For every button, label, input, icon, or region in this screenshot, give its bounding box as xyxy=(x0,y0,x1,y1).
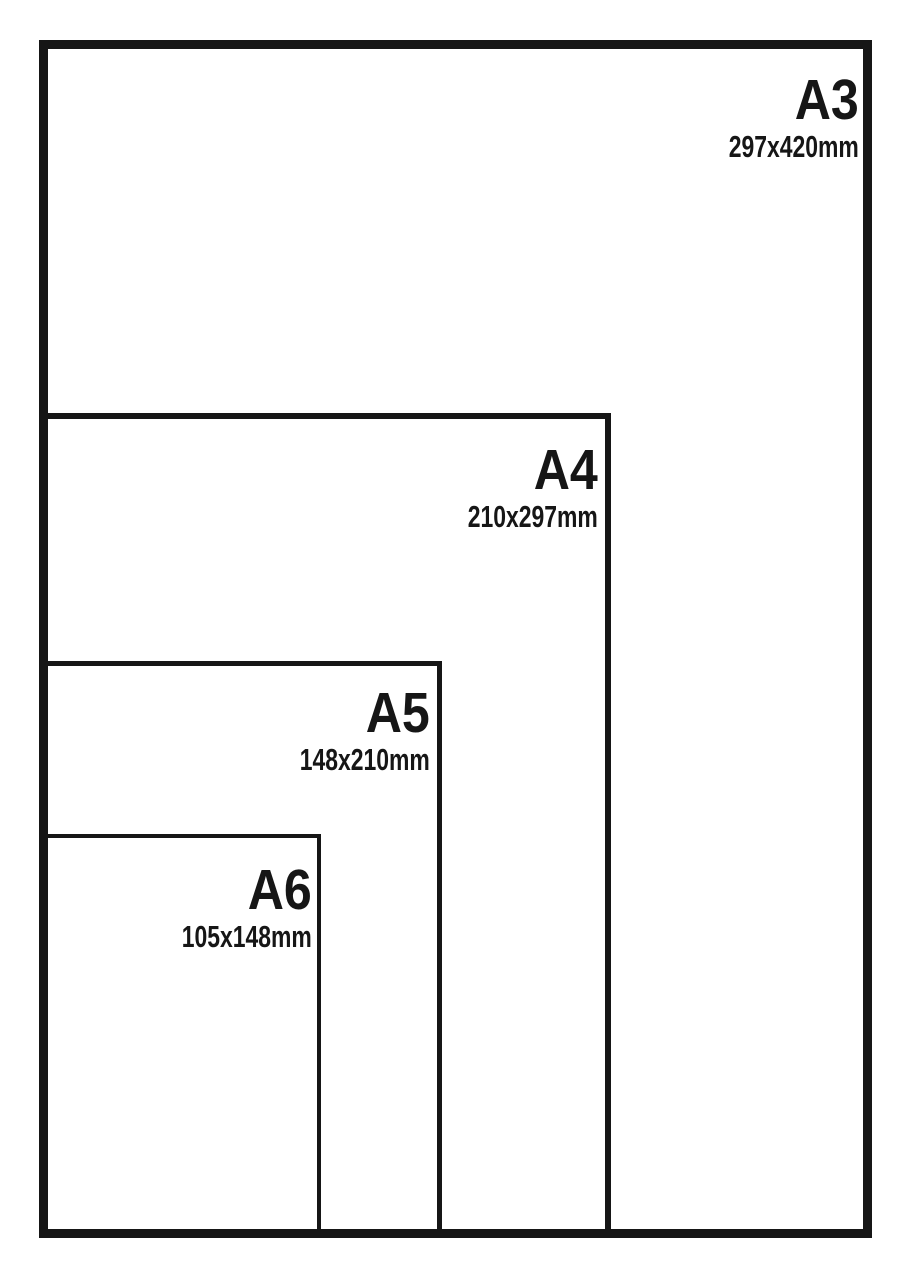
a5-label-group: A5 148x210mm xyxy=(254,685,430,775)
paper-size-diagram: A3 297x420mm A4 210x297mm A5 148x210mm A… xyxy=(0,0,905,1280)
a6-label-group: A6 105x148mm xyxy=(136,862,312,952)
a4-size-dimensions: 210x297mm xyxy=(468,501,598,532)
a3-label-group: A3 297x420mm xyxy=(683,72,859,162)
a6-size-dimensions: 105x148mm xyxy=(182,921,312,952)
a4-label-group: A4 210x297mm xyxy=(422,442,598,532)
a4-size-label: A4 xyxy=(443,442,598,499)
a6-size-label: A6 xyxy=(157,862,312,919)
a5-size-dimensions: 148x210mm xyxy=(300,744,430,775)
a5-size-label: A5 xyxy=(275,685,430,742)
a3-size-label: A3 xyxy=(704,72,859,129)
a3-size-dimensions: 297x420mm xyxy=(729,131,859,162)
